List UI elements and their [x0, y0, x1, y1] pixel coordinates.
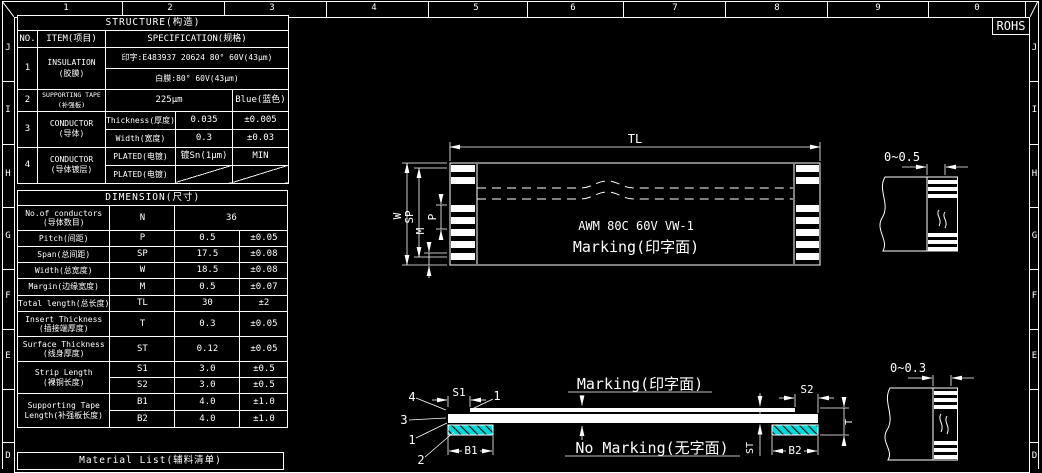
ruler-tick — [827, 2, 828, 17]
tolerance-cell: ±0.5 — [240, 362, 288, 378]
dim-label-cell: Width(总宽度) — [18, 263, 110, 279]
s2-dim-label: S2 — [800, 383, 813, 396]
value-cell: 17.5 — [175, 247, 240, 263]
symbol-cell: W — [110, 263, 175, 279]
frame-outer-top — [2, 1, 1038, 2]
spec-label-cell: PLATED(电镀) — [106, 165, 176, 183]
label-line: Length(补强板长度) — [24, 411, 103, 420]
ruler-tick — [428, 2, 429, 17]
tolerance-cell: ±1.0 — [240, 394, 288, 411]
value-cell: 0.3 — [175, 312, 240, 337]
break-squiggle — [944, 212, 946, 228]
col-header-no: NO. — [18, 31, 38, 48]
no-marking-label: No Marking(无字面) — [575, 439, 728, 457]
ruler-letter: H — [2, 169, 14, 179]
symbol-cell: ST — [110, 337, 175, 362]
tolerance-cell: ±1.0 — [240, 411, 288, 428]
dim-protrusion-bottom — [908, 375, 974, 386]
ruler-tick — [1030, 442, 1038, 443]
ruler-tick — [527, 2, 528, 17]
ruler-number: 8 — [774, 3, 779, 13]
table-row: Total length(总长度) TL 30 ±2 — [18, 296, 288, 312]
table-row: 2 SUPPORTING TAPE (补强板) 225μm Blue(蓝色) — [18, 90, 289, 112]
row-no: 3 — [18, 111, 38, 147]
table-row: Span(总间距) SP 17.5 ±0.08 — [18, 247, 288, 263]
dim-label-cell: Margin(边缘宽度) — [18, 279, 110, 296]
value-cell: 3.0 — [175, 362, 240, 378]
label-line: No.of conductors — [25, 209, 102, 218]
material-list-title: Material List(辅料清单) — [18, 453, 284, 470]
detail-stripes — [934, 391, 957, 459]
table-row: Material List(辅料清单) — [18, 453, 284, 470]
ruler-tick — [2, 144, 14, 145]
ruler-number: 7 — [672, 3, 677, 13]
value-cell: 36 — [175, 206, 288, 231]
value-cell: 225μm — [106, 90, 233, 112]
item-cell: CONDUCTOR (导体) — [38, 111, 106, 147]
dim-label-cell: Total length(总长度) — [18, 296, 110, 312]
ruler-number: 0 — [974, 3, 979, 13]
tl-dim-label: TL — [628, 132, 642, 146]
tolerance-cell: ±0.05 — [240, 312, 288, 337]
value-cell: 4.0 — [175, 394, 240, 411]
protrusion-dim-label: 0~0.5 — [884, 150, 920, 164]
ruler-tick — [1030, 329, 1038, 330]
structure-title: STRUCTURE(构造) — [18, 16, 289, 31]
detail-stripes — [928, 180, 957, 251]
m-dim-label: M — [414, 227, 427, 234]
break-dashed-lines — [477, 181, 793, 199]
symbol-cell: S1 — [110, 362, 175, 378]
ruler-number: 9 — [875, 3, 880, 13]
ruler-letter: H — [1030, 169, 1039, 179]
ruler-tick — [928, 2, 929, 17]
value-cell: 镀Sn(1μm) — [175, 147, 232, 165]
table-row: Insert Thickness (插接端厚度) T 0.3 ±0.05 — [18, 312, 288, 337]
spec-cell: 印字:E483937 20624 80° 60V(43μm) — [106, 48, 289, 69]
dim-label-cell: No.of conductors (导体数目) — [18, 206, 110, 231]
tolerance-cell: ±0.07 — [240, 279, 288, 296]
dim-label-cell: Span(总间距) — [18, 247, 110, 263]
table-row: 4 CONDUCTOR (导体镀层) PLATED(电镀) 镀Sn(1μm) M… — [18, 147, 289, 165]
ruler-number: 1 — [63, 3, 68, 13]
material-list-table: Material List(辅料清单) — [17, 452, 284, 470]
table-row: STRUCTURE(构造) — [18, 16, 289, 31]
ruler-number: 5 — [473, 3, 478, 13]
label-line: (插接端厚度) — [39, 324, 89, 333]
label-line: (线身厚度) — [43, 349, 85, 358]
marking-label: Marking(印字面) — [577, 375, 703, 393]
ruler-tick — [725, 2, 726, 17]
dim-label-cell: Pitch(间距) — [18, 231, 110, 247]
value-cell: 3.0 — [175, 378, 240, 394]
label-line: Surface Thickness — [23, 340, 105, 349]
label-line: Insert Thickness — [25, 315, 102, 324]
table-row: DIMENSION(尺寸) — [18, 191, 288, 206]
dim-sp — [414, 168, 447, 257]
conductor-stripes-right — [796, 165, 819, 260]
plan-view: TL W SP M P AWM 80C 60V VW-1 — [391, 132, 820, 278]
b1-dim-label: B1 — [464, 444, 477, 457]
item-label: CONDUCTOR — [50, 155, 93, 164]
cable-rating-text: AWM 80C 60V VW-1 — [578, 219, 694, 233]
dim-label-cell: Surface Thickness (线身厚度) — [18, 337, 110, 362]
p-dim-label: P — [426, 213, 439, 220]
callout-conductor: 3 — [400, 413, 407, 427]
table-row: Width(总宽度) W 18.5 ±0.08 — [18, 263, 288, 279]
ruler-tick — [2, 389, 14, 390]
side-view: 4 3 1 2 1 S1 S2 B1 B2 — [400, 375, 855, 467]
tolerance-cell: ±0.03 — [232, 129, 288, 147]
label-line: Supporting Tape — [28, 401, 100, 410]
ruler-letter: J — [1030, 43, 1039, 53]
value-cell: 0.3 — [175, 129, 232, 147]
symbol-cell: TL — [110, 296, 175, 312]
spec-cell: 白膜:80° 60V(43μm) — [106, 69, 289, 90]
ruler-number: 2 — [167, 3, 172, 13]
table-row: Supporting Tape Length(补强板长度) B1 4.0 ±1.… — [18, 394, 288, 411]
ruler-tick — [623, 2, 624, 17]
crossed-out-cell — [175, 165, 232, 183]
symbol-cell: B1 — [110, 394, 175, 411]
value-cell: 0.12 — [175, 337, 240, 362]
ruler-tick — [1030, 207, 1038, 208]
value-cell: 30 — [175, 296, 240, 312]
value-cell: 0.5 — [175, 279, 240, 296]
break-squiggle — [938, 210, 940, 226]
ruler-letter: I — [2, 105, 14, 115]
callout-top-film: 1 — [493, 389, 500, 403]
row-no: 1 — [18, 48, 38, 90]
ruler-letter: E — [2, 351, 14, 361]
dimension-title: DIMENSION(尺寸) — [18, 191, 288, 206]
table-row: Pitch(间距) P 0.5 ±0.05 — [18, 231, 288, 247]
ruler-tick — [2, 269, 14, 270]
item-label-cn: (胶膜) — [59, 69, 85, 78]
row-no: 2 — [18, 90, 38, 112]
item-label-cn: (导体镀层) — [51, 165, 93, 174]
dimension-table: DIMENSION(尺寸) No.of conductors (导体数目) N … — [17, 190, 288, 428]
sp-dim-label: SP — [403, 210, 416, 224]
spec-label-cell: Width(宽度) — [106, 129, 176, 147]
ruler-tick — [1030, 269, 1038, 270]
s1-dim-label: S1 — [452, 386, 465, 399]
tolerance-cell: ±2 — [240, 296, 288, 312]
callout-tape: 2 — [417, 453, 424, 467]
marking-side-label: Marking(印字面) — [573, 238, 699, 256]
item-label-cn: (导体) — [59, 129, 85, 138]
st-dim-label: ST — [745, 442, 756, 454]
break-squiggle — [940, 414, 942, 432]
ruler-tick — [1030, 389, 1038, 390]
item-cell: INSULATION (胶膜) — [38, 48, 106, 90]
item-label-cn: (补强板) — [58, 101, 85, 109]
item-cell: SUPPORTING TAPE (补强板) — [38, 90, 106, 112]
t-dim-label: T — [844, 419, 855, 425]
dim-label-cell: Supporting Tape Length(补强板长度) — [18, 394, 110, 428]
ruler-letter: E — [1030, 351, 1039, 361]
value-cell: 4.0 — [175, 411, 240, 428]
symbol-cell: S2 — [110, 378, 175, 394]
ruler-tick — [2, 442, 14, 443]
spec-label-cell: PLATED(电镀) — [106, 147, 176, 165]
supporting-tape-right — [772, 425, 818, 435]
value-cell: 0.035 — [175, 111, 232, 129]
conductor-layer — [448, 414, 818, 423]
ruler-number: 4 — [371, 3, 376, 13]
row-no: 4 — [18, 147, 38, 183]
structure-table: STRUCTURE(构造) NO. ITEM(项目) SPECIFICATION… — [17, 15, 289, 184]
ruler-letter: J — [2, 43, 14, 53]
tolerance-cell: ±0.5 — [240, 378, 288, 394]
ruler-letter: G — [2, 231, 14, 241]
conductor-stripes-left — [451, 165, 475, 260]
dim-protrusion-top — [902, 164, 968, 175]
tolerance-cell: ±0.08 — [240, 263, 288, 279]
label-line: (裸铜长度) — [43, 378, 85, 387]
callout-plating: 4 — [408, 390, 415, 404]
symbol-cell: P — [110, 231, 175, 247]
ruler-letter: D — [1030, 451, 1039, 461]
tolerance-cell: ±0.05 — [240, 337, 288, 362]
tolerance-cell: ±0.005 — [232, 111, 288, 129]
cad-drawing-sheet: { "frame": { "rohs": "ROHS", "top_ruler"… — [0, 0, 1042, 469]
color-cell: Blue(蓝色) — [232, 90, 288, 112]
item-label: SUPPORTING TAPE — [42, 91, 101, 99]
ruler-letter: F — [2, 291, 14, 301]
symbol-cell: B2 — [110, 411, 175, 428]
ruler-letter: D — [2, 451, 14, 461]
callout-bottom-film: 1 — [408, 433, 415, 447]
drawing-area: TL W SP M P AWM 80C 60V VW-1 — [300, 20, 1030, 469]
item-label: CONDUCTOR — [50, 119, 93, 128]
b2-dim-label: B2 — [788, 444, 801, 457]
col-header-spec: SPECIFICATION(规格) — [106, 31, 289, 48]
ruler-tick — [2, 207, 14, 208]
detail-view-bottom: 0~0.3 — [885, 361, 974, 460]
item-label: INSULATION — [47, 58, 95, 67]
ruler-tick — [326, 2, 327, 17]
symbol-cell: SP — [110, 247, 175, 263]
ruler-tick — [1025, 2, 1026, 17]
supporting-tape-left — [448, 425, 493, 435]
tolerance-cell: MIN — [232, 147, 288, 165]
ruler-number: 3 — [269, 3, 274, 13]
ruler-tick — [2, 81, 14, 82]
frame-corner-topleft — [2, 1, 14, 17]
break-squiggle — [946, 416, 948, 434]
top-insulation-film — [470, 408, 795, 412]
dim-label-cell: Strip Length (裸铜长度) — [18, 362, 110, 394]
table-row: Strip Length (裸铜长度) S1 3.0 ±0.5 — [18, 362, 288, 378]
symbol-cell: T — [110, 312, 175, 337]
tolerance-cell: ±0.05 — [240, 231, 288, 247]
dim-label-cell: Insert Thickness (插接端厚度) — [18, 312, 110, 337]
table-row: 3 CONDUCTOR (导体) Thickness(厚度) 0.035 ±0.… — [18, 111, 289, 129]
protrusion-dim-label: 0~0.3 — [890, 361, 926, 375]
item-cell: CONDUCTOR (导体镀层) — [38, 147, 106, 183]
symbol-cell: N — [110, 206, 175, 231]
col-header-item: ITEM(项目) — [38, 31, 106, 48]
tolerance-cell: ±0.08 — [240, 247, 288, 263]
table-row: Margin(边缘宽度) M 0.5 ±0.07 — [18, 279, 288, 296]
table-row: NO. ITEM(项目) SPECIFICATION(规格) — [18, 31, 289, 48]
table-row: 1 INSULATION (胶膜) 印字:E483937 20624 80° 6… — [18, 48, 289, 69]
ruler-tick — [2, 329, 14, 330]
label-line: (导体数目) — [43, 218, 85, 227]
table-row: Surface Thickness (线身厚度) ST 0.12 ±0.05 — [18, 337, 288, 362]
table-row: No.of conductors (导体数目) N 36 — [18, 206, 288, 231]
label-line: Strip Length — [35, 368, 93, 377]
ruler-letter: G — [1030, 231, 1039, 241]
dim-m — [424, 242, 447, 278]
ruler-number: 6 — [570, 3, 575, 13]
symbol-cell: M — [110, 279, 175, 296]
ruler-letter: I — [1030, 105, 1039, 115]
detail-view-top: 0~0.5 — [880, 150, 968, 251]
spec-label-cell: Thickness(厚度) — [106, 111, 176, 129]
value-cell: 18.5 — [175, 263, 240, 279]
value-cell: 0.5 — [175, 231, 240, 247]
ruler-tick — [1030, 81, 1038, 82]
crossed-out-cell — [232, 165, 288, 183]
ruler-tick — [1030, 144, 1038, 145]
frame-corner-topright — [1030, 1, 1038, 17]
ruler-letter: F — [1030, 291, 1039, 301]
